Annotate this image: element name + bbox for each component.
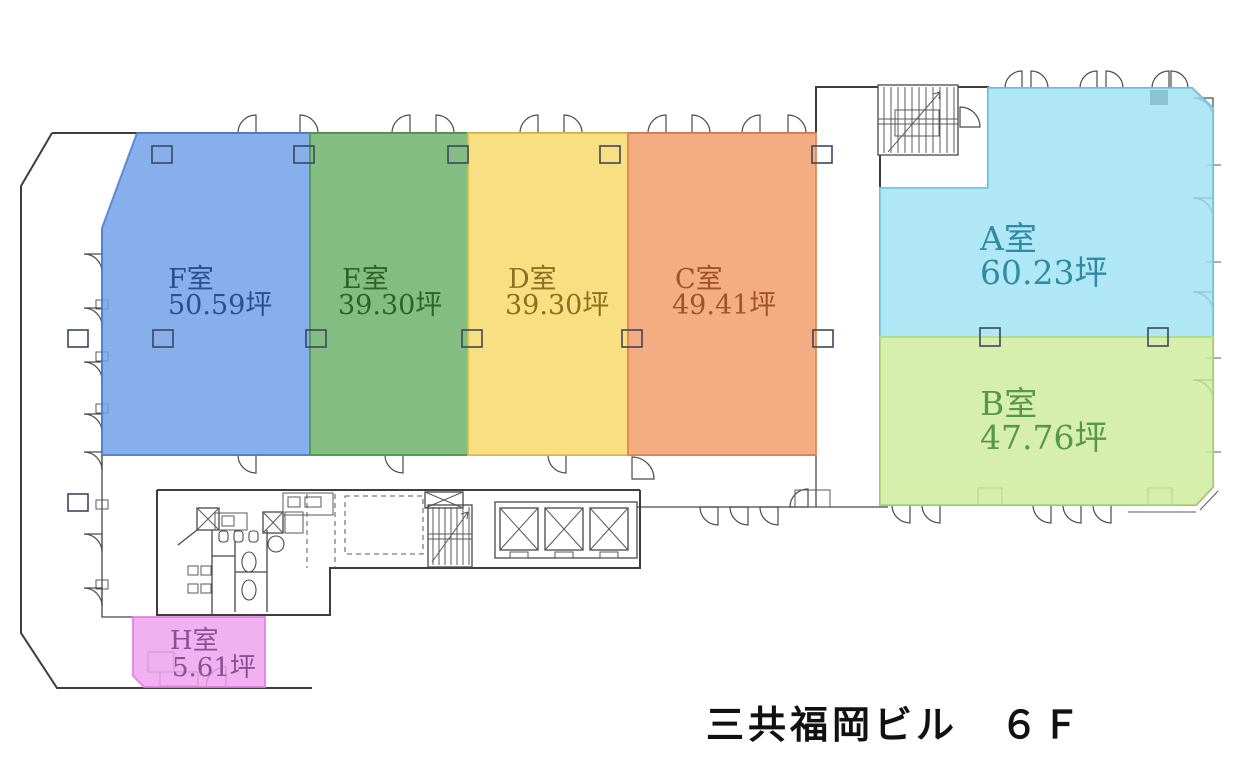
room-A-area bbox=[880, 88, 1213, 337]
room-B-size: 47.76坪 bbox=[980, 418, 1107, 457]
room-F-size: 50.59坪 bbox=[168, 290, 272, 321]
room-H-size: 5.61坪 bbox=[172, 653, 256, 683]
floor-plan-page: F室 50.59坪 E室 39.30坪 D室 39.30坪 C室 49.41坪 … bbox=[0, 0, 1251, 775]
stairwell-core bbox=[428, 505, 472, 567]
tenant-areas bbox=[102, 88, 1213, 687]
room-A-size: 60.23坪 bbox=[980, 253, 1107, 292]
floor-plan: F室 50.59坪 E室 39.30坪 D室 39.30坪 C室 49.41坪 … bbox=[0, 0, 1251, 775]
room-C-size: 49.41坪 bbox=[672, 290, 776, 321]
elevator-bank bbox=[495, 502, 637, 558]
room-H-name: H室 bbox=[170, 626, 219, 656]
room-E-size: 39.30坪 bbox=[338, 290, 442, 321]
stairwell-upper bbox=[878, 85, 958, 155]
room-D-size: 39.30坪 bbox=[505, 290, 609, 321]
plan-title: 三共福岡ビル ６Ｆ bbox=[706, 705, 1084, 747]
